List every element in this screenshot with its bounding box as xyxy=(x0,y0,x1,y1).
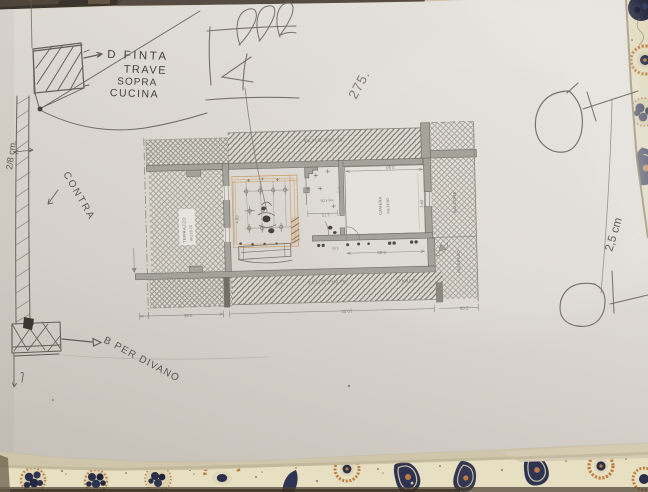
svg-text:mq 16.75: mq 16.75 xyxy=(189,225,193,241)
svg-text:CAMERA: CAMERA xyxy=(377,196,382,215)
svg-text:3.90: 3.90 xyxy=(385,165,394,170)
svg-text:ALTRA DITTA: ALTRA DITTA xyxy=(307,279,346,285)
svg-text:2.05: 2.05 xyxy=(459,306,468,311)
svg-text:3.55: 3.55 xyxy=(183,313,192,318)
svg-text:5.03: 5.03 xyxy=(377,250,386,255)
svg-text:TERRAZZO: TERRAZZO xyxy=(181,217,187,243)
svg-text:INGRESSO: INGRESSO xyxy=(456,250,462,273)
svg-text:CUCINA: CUCINA xyxy=(110,87,160,101)
svg-text:D FINTA: D FINTA xyxy=(107,49,169,63)
svg-text:3.60: 3.60 xyxy=(419,199,424,208)
svg-text:BALCONE: BALCONE xyxy=(452,191,458,213)
svg-text:10.00: 10.00 xyxy=(341,309,353,314)
svg-text:mq 14.00: mq 14.00 xyxy=(386,198,390,213)
svg-text:mq 4.05: mq 4.05 xyxy=(320,198,333,202)
svg-text:ALTRA D.: ALTRA D. xyxy=(395,278,417,284)
svg-text:8.50: 8.50 xyxy=(275,280,282,284)
svg-text:3.05: 3.05 xyxy=(332,246,339,250)
svg-text:TRAVE: TRAVE xyxy=(123,63,167,77)
svg-text:4.80: 4.80 xyxy=(234,215,239,224)
